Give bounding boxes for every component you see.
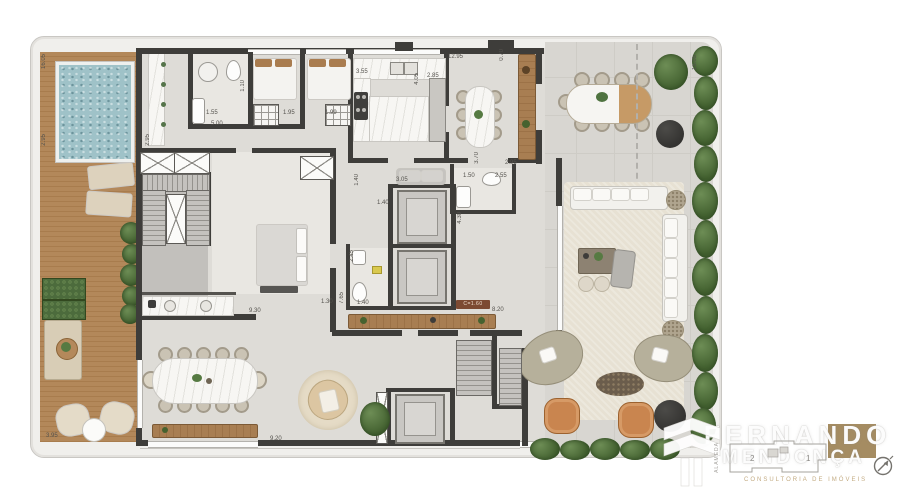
- dimension-label: 1.95: [283, 110, 295, 116]
- wall: [512, 164, 516, 214]
- dimension-label: 2.85: [427, 73, 439, 79]
- sink: [200, 300, 212, 312]
- wall: [414, 158, 448, 163]
- wall: [536, 48, 542, 84]
- dimension-label: 1.40: [354, 174, 360, 186]
- hedge: [694, 296, 718, 334]
- ottoman: [594, 276, 610, 292]
- plant-icon: [161, 122, 166, 127]
- sink: [164, 300, 176, 312]
- decor-item: [372, 266, 382, 274]
- wall: [142, 292, 236, 295]
- tv-console: [260, 286, 298, 293]
- keyplan-unit-2: 2: [750, 454, 755, 463]
- sofa-cushion: [573, 188, 592, 201]
- sofa-cushion: [630, 188, 649, 201]
- wall: [556, 158, 562, 206]
- north-compass-icon: [868, 450, 898, 480]
- elevator-car: [395, 394, 445, 444]
- plant-icon: [594, 252, 603, 261]
- staircase-down: [499, 348, 522, 406]
- wall: [252, 148, 336, 153]
- sofa-cushion: [664, 298, 678, 318]
- keyplan: 2 1: [722, 436, 834, 480]
- pillow: [296, 256, 307, 282]
- hedge: [694, 220, 718, 258]
- pool: [56, 62, 134, 162]
- shaft-block: [395, 42, 413, 51]
- wall: [136, 440, 148, 446]
- elevator-car: [397, 190, 447, 244]
- staircase: [186, 190, 210, 246]
- pool-lounger: [85, 190, 133, 217]
- dimension-label: 1.99: [325, 110, 337, 116]
- dimension-label: 0.70: [499, 49, 505, 61]
- kitchen-island: [369, 96, 429, 142]
- keyplan-street-label: ALAMEDA: [714, 442, 720, 473]
- hedge: [692, 334, 718, 372]
- hedge: [694, 372, 718, 410]
- decor-item: [430, 317, 436, 323]
- burner: [356, 95, 360, 99]
- hedge: [692, 110, 718, 146]
- wall: [188, 124, 305, 129]
- dimension-label: 16.05: [41, 54, 47, 69]
- potted-plant: [360, 402, 390, 436]
- sliding-door-glass: [137, 360, 143, 428]
- closet: [300, 156, 334, 180]
- plant-icon: [478, 317, 485, 324]
- plant-icon: [161, 102, 166, 107]
- brand-monogram-icon: [662, 416, 722, 488]
- pillow: [329, 59, 346, 67]
- sofa-cushion: [611, 188, 630, 201]
- wall: [418, 330, 458, 336]
- pouf: [610, 249, 636, 289]
- window: [148, 441, 258, 448]
- sofa-cushion: [664, 238, 678, 258]
- sofa-cushion: [592, 188, 611, 201]
- dimension-label: 12.95: [448, 54, 463, 60]
- toilet: [352, 282, 367, 302]
- pillow: [275, 59, 292, 67]
- potted-plant: [654, 54, 688, 90]
- dimension-label: 9.20: [270, 436, 282, 442]
- pillow: [309, 59, 326, 67]
- dimension-label: 2.45: [349, 250, 355, 262]
- sink: [390, 62, 404, 75]
- console-sideboard: [348, 314, 496, 329]
- grill-icon: [522, 66, 530, 74]
- wall: [300, 52, 305, 126]
- elevator-shaft-wall: [450, 388, 455, 444]
- plant-icon: [162, 427, 168, 433]
- elevator-shaft-wall: [386, 388, 454, 392]
- sofa-cushion: [664, 258, 678, 278]
- decor-item: [206, 378, 212, 384]
- hedge: [530, 438, 560, 460]
- dimension-label: 3.55: [356, 69, 368, 75]
- dimension-label: 7.65: [339, 292, 345, 304]
- wall: [348, 158, 388, 163]
- closet: [140, 152, 176, 174]
- terrace-glass: [557, 206, 563, 330]
- dimension-label: 1.50: [463, 173, 475, 179]
- dimension-label: 2.95: [505, 160, 517, 166]
- sofa-cushion: [421, 170, 443, 182]
- stair-void: [166, 194, 186, 244]
- wall: [536, 130, 542, 164]
- dimension-label: 2.95: [145, 134, 151, 146]
- planter-box: [42, 278, 86, 300]
- wall: [332, 330, 402, 336]
- planter-bowl: [656, 120, 684, 148]
- floor-plan-canvas: C=1.60 16.05 2.95 3.95 2.95 1.55 5.00 1.…: [0, 0, 900, 499]
- decor-item: [148, 300, 156, 308]
- plant-icon: [360, 317, 367, 324]
- pool-lounger: [87, 162, 135, 191]
- dimension-line: [140, 448, 520, 449]
- planter-box: [42, 300, 86, 320]
- toilet: [226, 60, 241, 81]
- outdoor-dining-table: [566, 84, 652, 124]
- window: [306, 49, 346, 55]
- pillow: [255, 59, 272, 67]
- pebble-rug: [596, 372, 644, 396]
- hedge: [620, 440, 650, 460]
- hedge: [590, 438, 620, 460]
- dining-table: [152, 358, 258, 404]
- plant-icon: [474, 110, 483, 119]
- hedge: [692, 182, 718, 220]
- window: [248, 49, 300, 55]
- burner: [362, 108, 366, 112]
- dimension-label: 5.00: [211, 121, 223, 127]
- dimension-label: 8.20: [492, 307, 504, 313]
- dimension-label: 4.30: [457, 212, 463, 224]
- dimension-label: 15.05: [692, 55, 698, 70]
- dimension-label: 9.30: [249, 308, 261, 314]
- shower: [198, 62, 218, 82]
- plant-icon: [161, 62, 166, 67]
- staircase: [142, 190, 166, 246]
- dimension-label: 4.05: [414, 73, 420, 85]
- wall: [388, 244, 392, 310]
- round-table: [82, 418, 106, 442]
- hedge: [692, 258, 718, 296]
- wall: [346, 306, 392, 310]
- dimension-label: 3.05: [396, 177, 408, 183]
- wall: [492, 336, 497, 408]
- elevator-shaft-wall: [388, 244, 456, 248]
- dimension-label: 1.30: [321, 299, 333, 305]
- hedge: [694, 76, 718, 110]
- washbasin: [456, 186, 471, 208]
- dimension-label: 1.40: [377, 200, 389, 206]
- plant-icon: [522, 120, 530, 128]
- dimension-label: 2.55: [495, 173, 507, 179]
- plant-icon: [596, 92, 608, 102]
- elevator-car: [397, 250, 447, 304]
- sofa-cushion: [664, 218, 678, 238]
- keyplan-unit-1: 1: [806, 454, 811, 463]
- dimension-label: 1.10: [240, 80, 246, 92]
- leather-armchair: [544, 398, 580, 434]
- wall: [136, 314, 142, 360]
- dimension-label: 2.95: [41, 134, 47, 146]
- decor-item: [583, 253, 589, 259]
- dimension-label: 3.95: [46, 433, 58, 439]
- elevator-shaft-wall: [388, 306, 456, 310]
- burner: [362, 95, 366, 99]
- washbasin: [192, 98, 205, 124]
- dimension-label: 1.40: [357, 300, 369, 306]
- tall-cabinet: [429, 78, 446, 142]
- dimension-label: 1.55: [206, 110, 218, 116]
- plant-icon: [161, 82, 166, 87]
- wardrobe: [253, 104, 279, 126]
- plant-icon: [192, 374, 202, 382]
- wall: [450, 164, 454, 214]
- burner: [356, 108, 360, 112]
- leather-armchair: [618, 402, 654, 438]
- credenza: [152, 424, 258, 438]
- dimension-label: 3.70: [474, 152, 480, 164]
- hedge: [694, 146, 718, 182]
- plant-icon: [61, 342, 71, 352]
- hedge: [560, 440, 590, 460]
- ottoman: [666, 190, 686, 210]
- pillow: [296, 228, 307, 254]
- staircase-down: [456, 340, 492, 396]
- ceiling-height-badge: C=1.60: [456, 300, 490, 309]
- ottoman: [578, 276, 594, 292]
- wall: [448, 158, 468, 163]
- sofa-cushion: [664, 278, 678, 298]
- closet: [174, 152, 210, 174]
